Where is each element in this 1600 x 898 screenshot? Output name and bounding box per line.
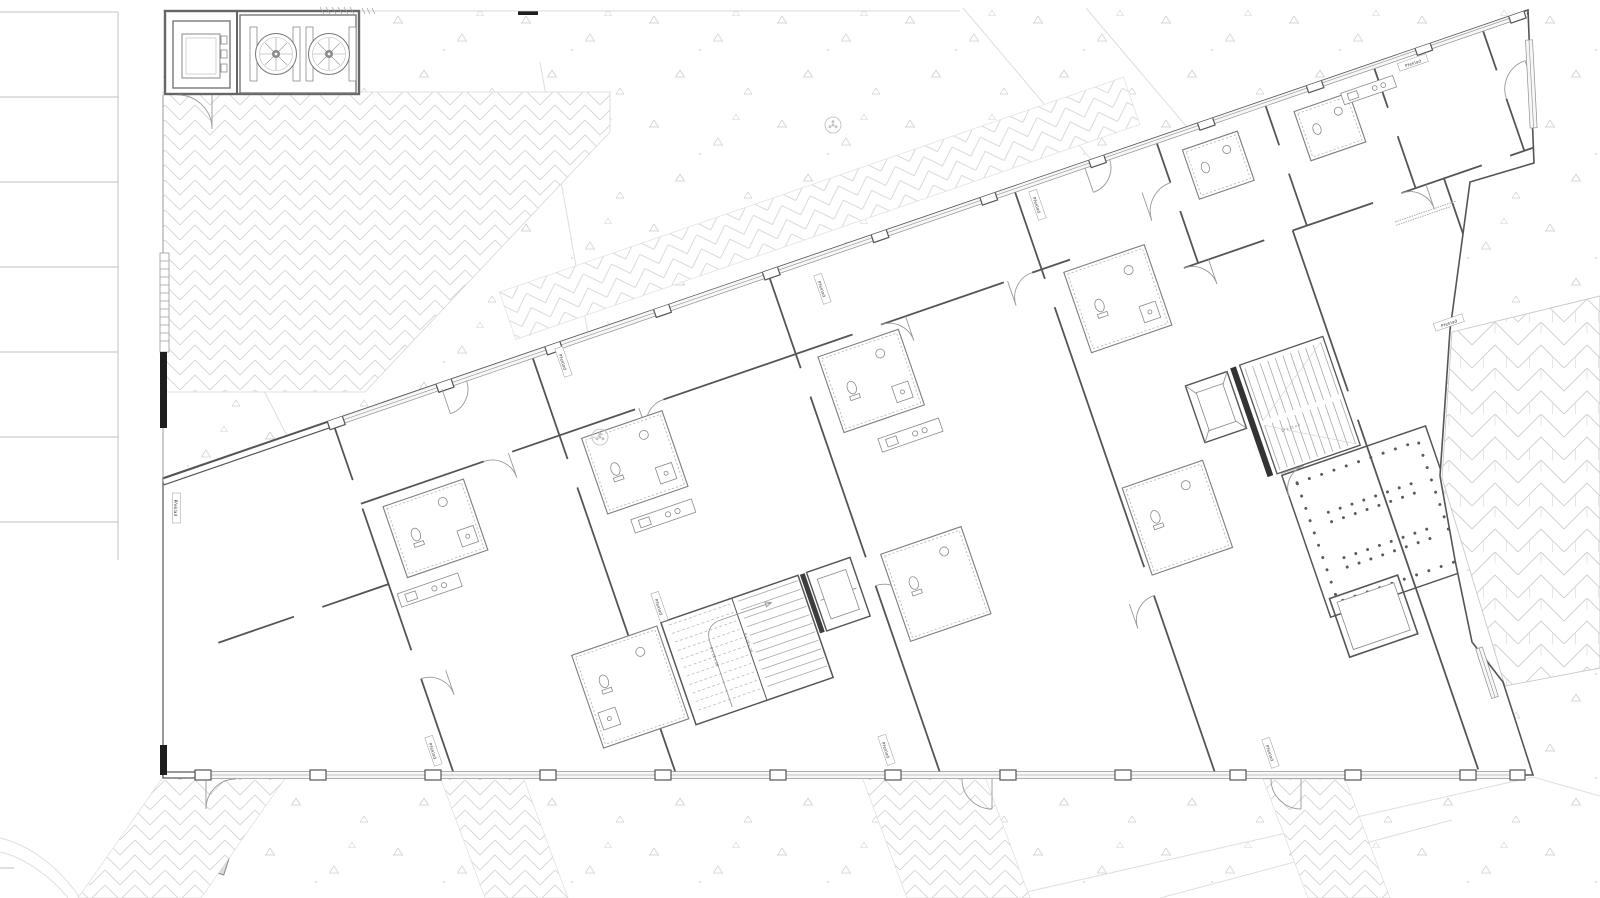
wall-black-segment: [160, 352, 167, 428]
elevator-cab: [182, 34, 220, 78]
fan-room: [240, 15, 356, 93]
parking-stalls: [0, 12, 118, 560]
solid-wall-segment: [163, 772, 195, 778]
floor-plan-sheet: Překlad Překlad Překlad Překlad Překlad …: [0, 0, 1600, 898]
wall-label: Překlad: [173, 493, 181, 523]
ladder-hatch: [160, 253, 169, 352]
wall-black-segment: [160, 745, 167, 775]
floor-plan-canvas: Překlad Překlad Překlad Překlad Překlad …: [0, 0, 1600, 898]
boundary-black-tick: [518, 11, 538, 15]
street-curb: [0, 838, 80, 898]
ahu-fan-icon: [309, 34, 350, 75]
ahu-fan-icon: [256, 34, 297, 75]
svg-text:Překlad: Překlad: [173, 500, 178, 517]
